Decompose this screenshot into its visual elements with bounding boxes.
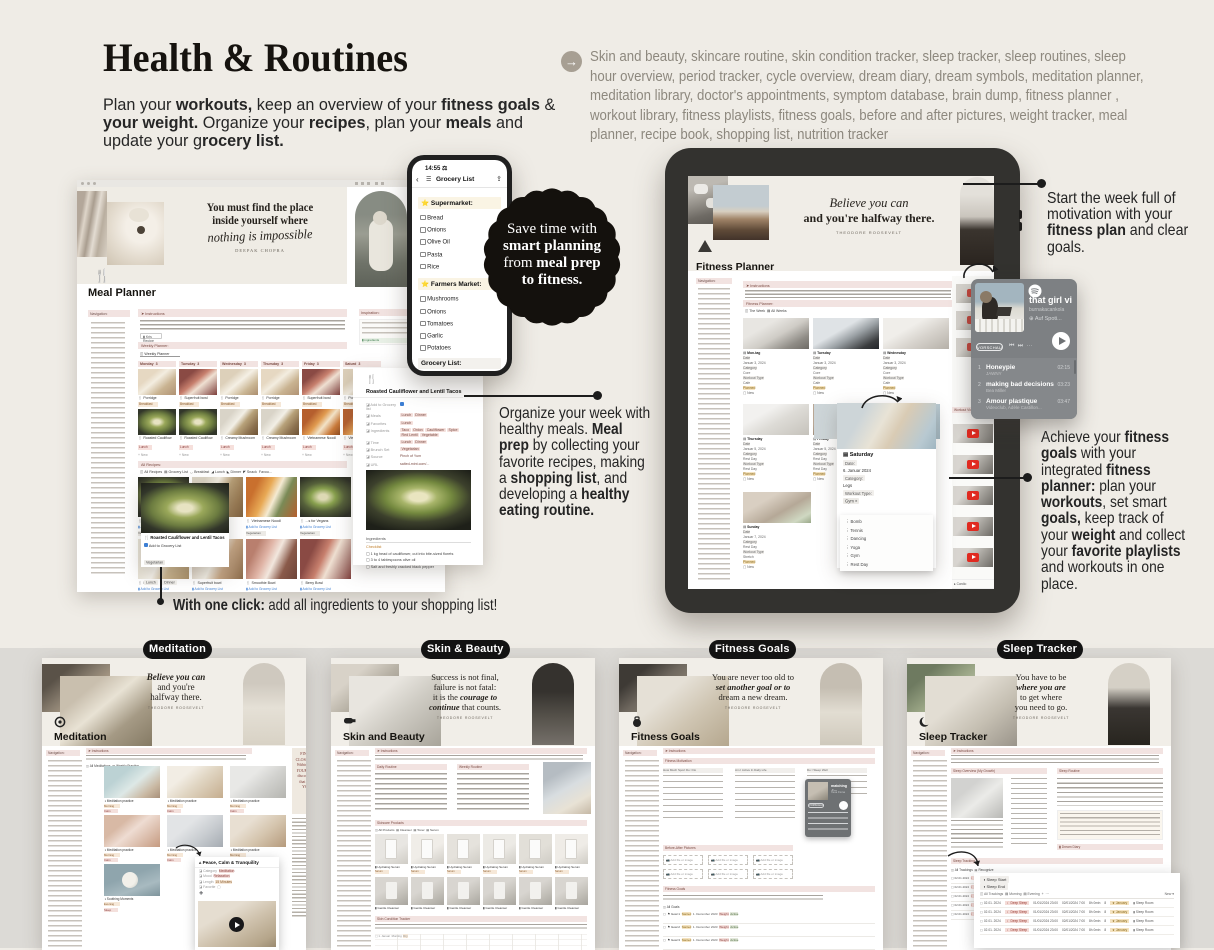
svg-text:from meal prep: from meal prep	[503, 255, 600, 271]
svg-text:to fitness.: to fitness.	[522, 272, 583, 288]
svg-text:Save time with: Save time with	[507, 221, 597, 237]
svg-text:smart planning: smart planning	[503, 238, 601, 254]
